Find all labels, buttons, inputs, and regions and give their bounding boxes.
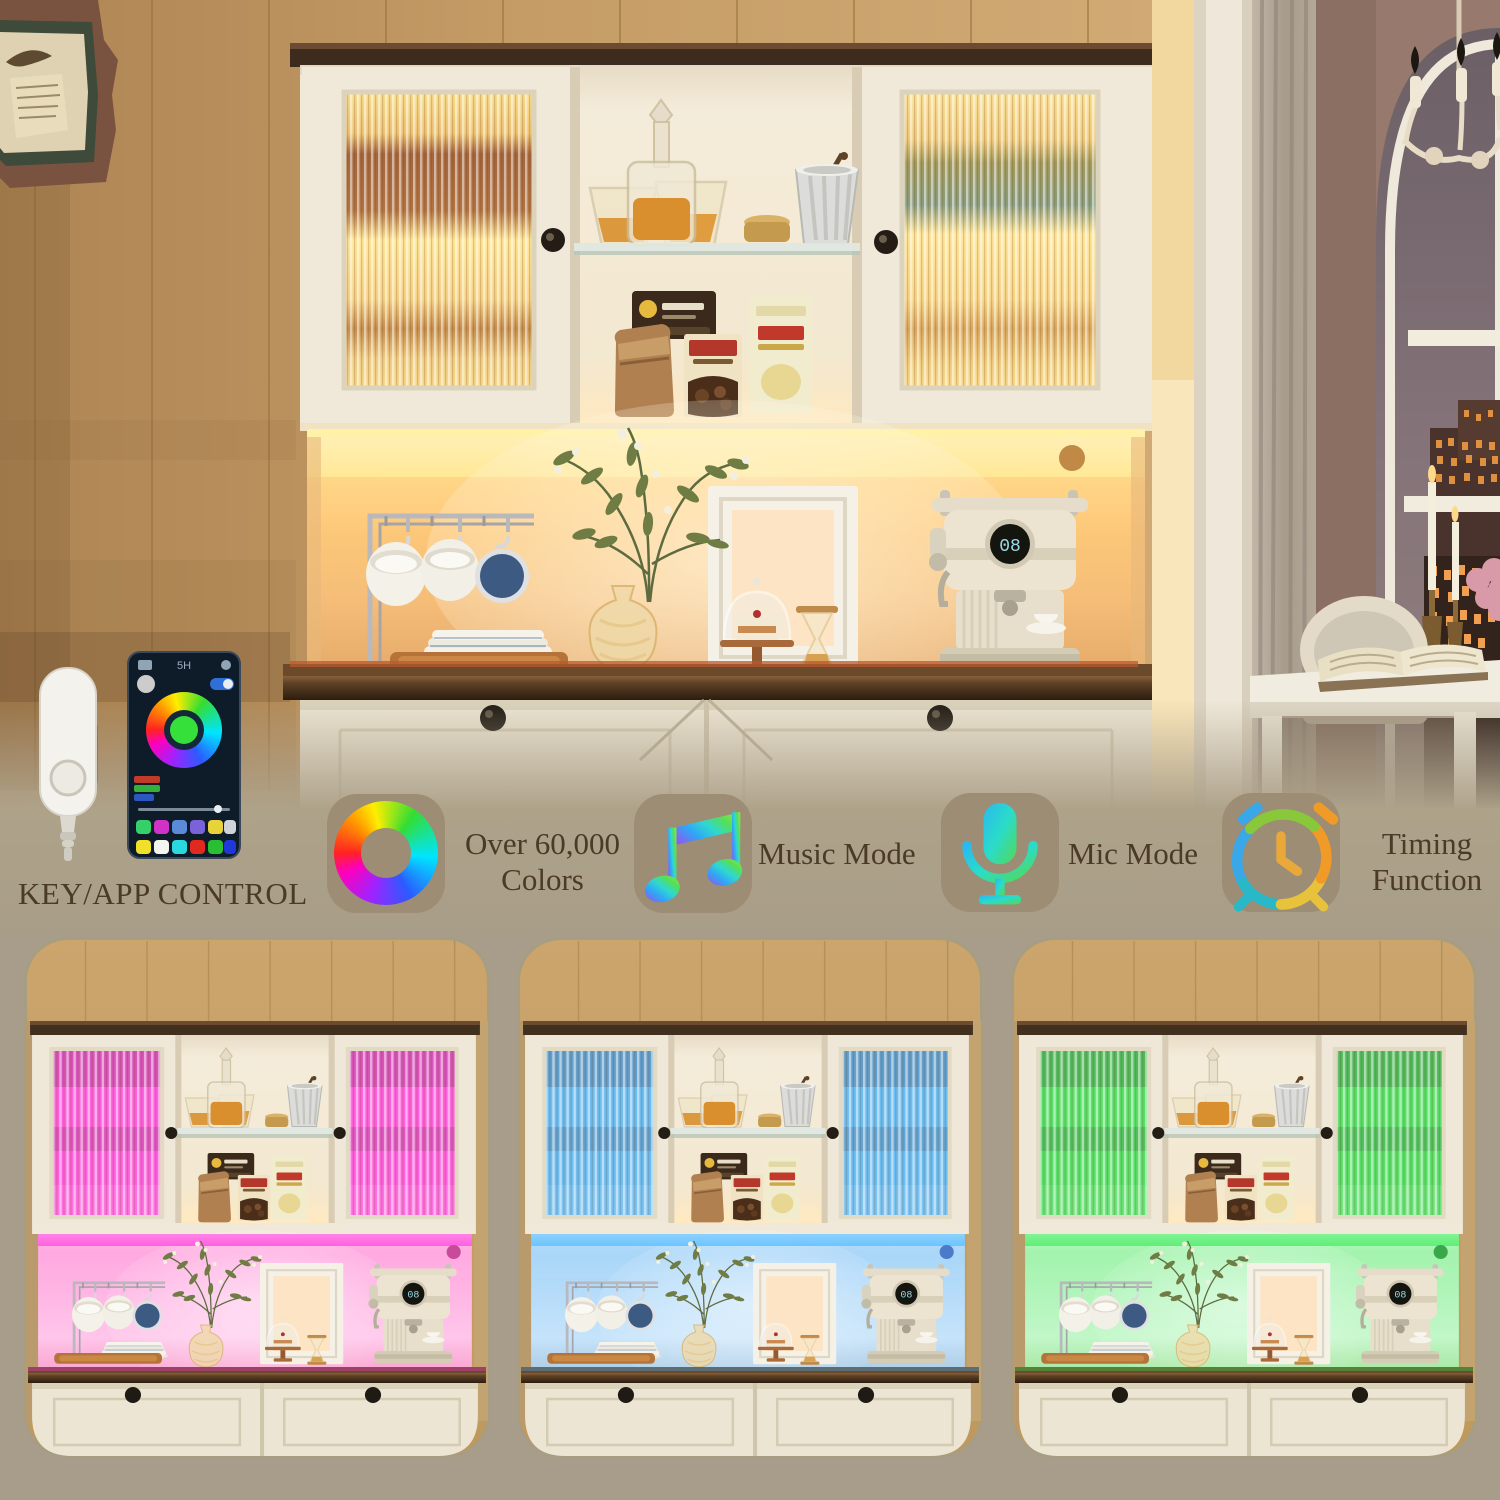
svg-text:5H: 5H <box>177 660 191 672</box>
